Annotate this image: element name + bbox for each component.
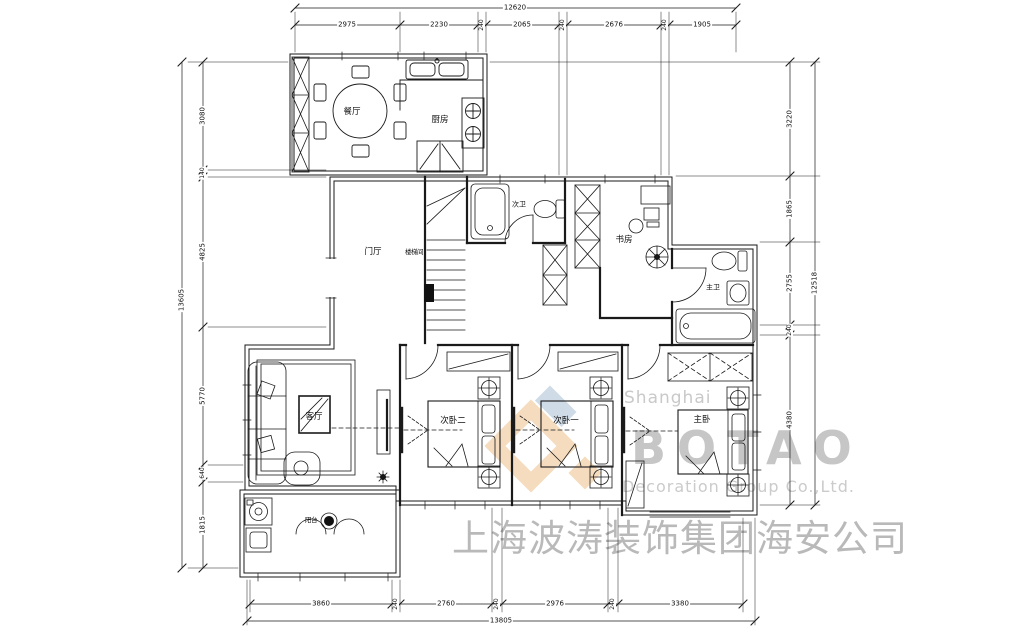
room-label-balcony: 阳台: [305, 517, 317, 524]
dim-bottom-seg-2: 240: [393, 597, 399, 610]
living-furniture: [248, 360, 400, 485]
room-label-bath2: 次卫: [512, 202, 526, 209]
dim-left-total: 13605: [179, 288, 186, 312]
room-label-kitchen: 厨房: [431, 116, 448, 125]
dim-right-total: 12518: [812, 271, 819, 295]
dim-right-seg-3: 2755: [787, 273, 794, 293]
dim-top-seg-6: 2676: [604, 22, 624, 29]
room-label-master-bedroom: 主卧: [693, 416, 710, 425]
room-label-stairs: 楼梯间: [405, 249, 423, 256]
dimension-lines: [178, 4, 820, 625]
dim-top-seg-7: 240: [662, 18, 668, 31]
dim-bottom-seg-7: 3380: [670, 601, 690, 608]
dim-top-seg-8: 1905: [692, 22, 712, 29]
dim-left-seg-6: 1815: [200, 515, 207, 535]
floor-plan-drawing: [0, 0, 1011, 628]
entry-opening: [327, 259, 336, 297]
dim-left-seg-4: 5770: [200, 386, 207, 406]
dim-top-seg-2: 2230: [429, 22, 449, 29]
balcony-furniture: [245, 498, 364, 552]
dim-bottom-seg-6: 240: [610, 597, 616, 610]
dim-right-seg-2: 1865: [787, 199, 794, 219]
dim-bottom-seg-3: 2760: [436, 601, 456, 608]
room-label-bedroom1: 次卧一: [553, 417, 579, 426]
floor-plan-page: Shanghai BOTAO Decoration Group Co.,Ltd.…: [0, 0, 1011, 628]
room-label-living: 客厅: [305, 413, 322, 422]
dim-top-seg-1: 2975: [337, 22, 357, 29]
master-bath-fixtures: [672, 251, 755, 343]
dim-left-seg-1: 3080: [200, 106, 207, 126]
dim-bottom-seg-1: 3860: [311, 601, 331, 608]
master-bedroom-furniture: [624, 345, 752, 517]
dim-bottom-seg-5: 2976: [545, 601, 565, 608]
dim-top-seg-4: 2065: [512, 22, 532, 29]
dim-top-seg-3: 240: [479, 18, 485, 31]
staircase: [424, 188, 465, 330]
study-furniture: [629, 186, 670, 268]
walls: [240, 54, 757, 577]
partition-walls: [400, 177, 753, 515]
dim-right-seg-5: 4380: [787, 410, 794, 430]
dim-left-seg-3: 4825: [200, 242, 207, 262]
dim-top-seg-5: 240: [560, 18, 566, 31]
bath2-fixtures: [471, 184, 565, 243]
room-label-master-bath: 主卫: [706, 285, 720, 292]
dim-right-seg-1: 3220: [787, 109, 794, 129]
dim-left-seg-5: 640: [200, 466, 206, 479]
room-label-foyer: 门厅: [364, 248, 381, 257]
dim-bottom-seg-4: 240: [494, 597, 500, 610]
room-label-study: 书房: [615, 236, 632, 245]
dim-right-seg-4: 240: [787, 323, 793, 336]
dim-bottom-total: 13805: [489, 618, 513, 625]
room-label-dining: 餐厅: [343, 108, 360, 117]
room-label-bedroom2: 次卧二: [440, 417, 466, 426]
dim-left-seg-2: 140: [200, 166, 206, 179]
dim-top-total: 12620: [503, 5, 527, 12]
